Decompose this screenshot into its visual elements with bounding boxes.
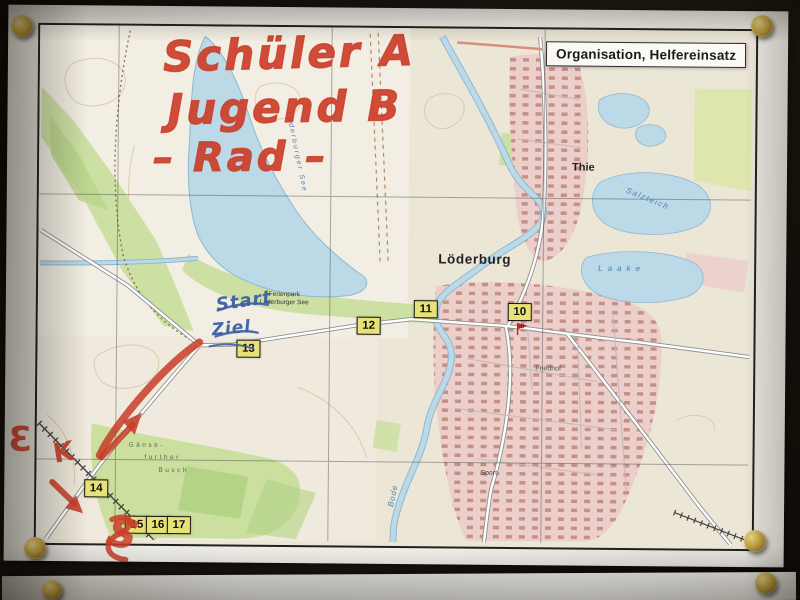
lower-sheet [2, 572, 796, 600]
legend-box: Organisation, Helfereinsatz [546, 41, 746, 68]
push-pin-lower-sheet-left [42, 580, 62, 600]
checkpoint-marker-11: 11 [414, 300, 438, 318]
house-number-label: 8 [521, 323, 525, 330]
cemetery-label: Friedhof [535, 365, 561, 372]
handwriting-rad: – Rad – [153, 134, 329, 182]
red-letter-e: Ɛ [8, 420, 32, 460]
handwriting-schueler-a: Schüler A [162, 26, 416, 82]
town-label: Löderburg [438, 251, 511, 267]
checkpoint-marker-17: 17 [167, 516, 191, 534]
push-pin-top-left [11, 15, 33, 37]
push-pin-top-right [751, 15, 773, 37]
push-pin-bottom-left [24, 537, 46, 559]
push-pin-lower-sheet-right [755, 572, 777, 594]
forest-name-line3: Busch [128, 464, 189, 477]
forest-name-line1: Gänse- [129, 440, 190, 453]
forest-name-label: Gänse- further Busch [128, 440, 189, 478]
push-pin-bottom-right [744, 530, 766, 552]
checkpoint-marker-14: 14 [84, 479, 108, 497]
checkpoint-marker-12: 12 [357, 317, 381, 335]
handwriting-ziel: Ziel [211, 317, 252, 341]
village-label: Thie [572, 162, 595, 174]
lake-laake-label: Laake [598, 264, 645, 273]
checkpoint-marker-10: 10 [508, 303, 532, 321]
map-sheet: Löderburg Thie Salzteich Laake Löderburg… [4, 5, 789, 568]
legend-label: Organisation, Helfereinsatz [556, 46, 736, 63]
handwriting-jugend-b: Jugend B [167, 81, 403, 134]
photo-of-pinned-map: Löderburg Thie Salzteich Laake Löderburg… [0, 0, 800, 600]
forest-name-line2: further [128, 452, 189, 465]
checkpoint-marker-13: 13 [236, 340, 260, 358]
sports-label: Sport [480, 470, 497, 477]
